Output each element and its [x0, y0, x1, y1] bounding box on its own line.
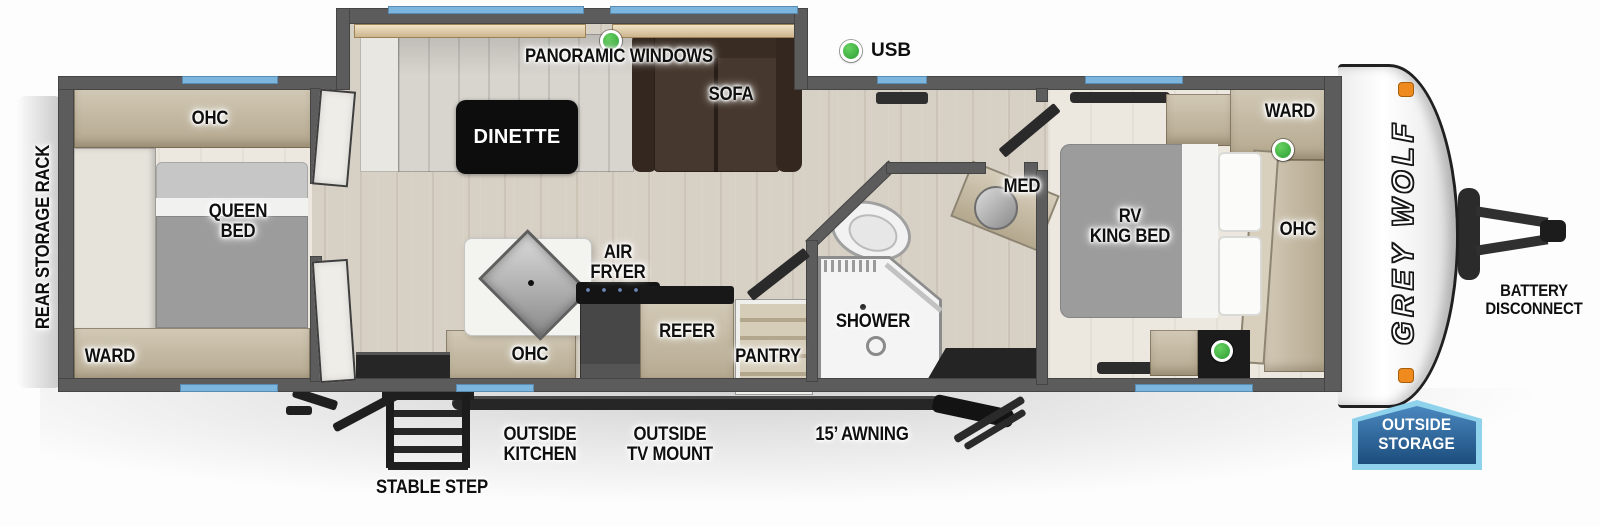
queen-bed-label: QUEEN BED	[209, 202, 268, 242]
rear-ohc-label: OHC	[192, 109, 229, 129]
window-living-top	[877, 76, 927, 84]
bath-wall-left	[806, 240, 818, 382]
bedroom-partition	[1036, 170, 1048, 385]
outside-tv-mount-label: OUTSIDE TV MOUNT	[627, 425, 713, 465]
outside-storage-label: OUTSIDE STORAGE	[1379, 416, 1456, 453]
rear-storage-rack-label: REAR STORAGE RACK	[34, 145, 54, 329]
valance-left	[354, 24, 586, 38]
wall-front	[1324, 76, 1342, 392]
bedroom-shade-top	[1070, 92, 1170, 103]
refer-countertop	[640, 286, 734, 304]
shower-drain	[860, 304, 866, 310]
refer-cabinet	[640, 302, 734, 386]
outside-storage-badge-inner: OUTSIDE STORAGE	[1358, 406, 1476, 464]
awning-label: 15’ AWNING	[815, 425, 908, 445]
battery-disconnect-label: BATTERY DISCONNECT	[1485, 282, 1582, 318]
slideout-wall-left	[336, 8, 350, 90]
stabilizer-foot	[286, 406, 312, 415]
bedroom-partition-stub	[1036, 88, 1048, 102]
bath-wall-top	[886, 162, 986, 174]
hitch-coupler	[1540, 220, 1566, 242]
step-rung-3	[394, 446, 462, 453]
usb-indicator-ward-icon	[1272, 139, 1294, 161]
bed-head-cabinet	[1166, 94, 1232, 146]
dinette-table: DINETTE	[456, 100, 578, 174]
rear-closet	[74, 148, 156, 332]
wall-rear	[58, 76, 74, 392]
shower-faucet	[866, 336, 886, 356]
front-ohc-label: OHC	[1280, 220, 1317, 240]
nightstand	[1150, 330, 1198, 376]
shower-head-strip	[824, 260, 876, 272]
stable-step-label: STABLE STEP	[376, 478, 488, 498]
king-bed-pillow-top	[1218, 152, 1262, 232]
hitch-arm-upper	[1476, 206, 1549, 227]
king-bed-pillow-bottom	[1218, 236, 1262, 316]
usb-legend: USB	[840, 38, 911, 64]
window-rear-top	[182, 76, 278, 84]
floorplan-canvas: GREY WOLF BATTERY DISCONNECT OHC QUEEN B…	[0, 0, 1600, 526]
refer-label: REFER	[659, 322, 715, 342]
range-body	[580, 302, 642, 384]
window-rear-bottom	[180, 384, 278, 392]
window-kitchen-bottom	[456, 384, 534, 392]
window-shade-hall	[876, 92, 928, 104]
king-bed-sheet	[1182, 144, 1218, 318]
step-rung-2	[394, 428, 462, 435]
step-rung-1	[394, 410, 462, 417]
rear-ward-label: WARD	[85, 347, 135, 367]
clearance-light-top	[1398, 82, 1414, 97]
med-label: MED	[1004, 177, 1041, 197]
queen-bed-pillows	[156, 162, 308, 202]
hitch-arm-lower	[1476, 234, 1549, 255]
front-ward-label: WARD	[1265, 102, 1315, 122]
shower-label: SHOWER	[836, 312, 910, 332]
king-bed-label: RV KING BED	[1090, 207, 1170, 247]
air-fryer-label: AIR FRYER	[590, 243, 645, 283]
step-base	[388, 462, 468, 470]
clearance-light-bottom	[1398, 368, 1414, 383]
brand-logo: GREY WOLF	[1387, 119, 1421, 345]
awning-rail	[452, 396, 940, 410]
window-bedroom-bottom	[1135, 384, 1253, 392]
valance-right	[612, 24, 796, 38]
panoramic-window-left	[388, 6, 584, 14]
slideout-wall-right	[794, 8, 808, 90]
kitchen-ohc-label: OHC	[512, 345, 549, 365]
panoramic-windows-label: PANORAMIC WINDOWS	[525, 47, 713, 67]
tongue-jack	[1458, 188, 1480, 280]
pantry-label: PANTRY	[735, 347, 801, 367]
usb-indicator-nightstand-icon	[1211, 340, 1233, 362]
kitchen-sink-drain	[528, 280, 534, 286]
usb-legend-label: USB	[871, 40, 911, 62]
outside-kitchen-label: OUTSIDE KITCHEN	[503, 425, 576, 465]
sofa-label: SOFA	[709, 85, 754, 105]
dinette-label: DINETTE	[474, 126, 561, 149]
window-bedroom-top	[1085, 76, 1183, 84]
usb-legend-dot-icon	[840, 40, 862, 62]
panoramic-window-right	[610, 6, 798, 14]
step-rail-right	[462, 394, 470, 468]
